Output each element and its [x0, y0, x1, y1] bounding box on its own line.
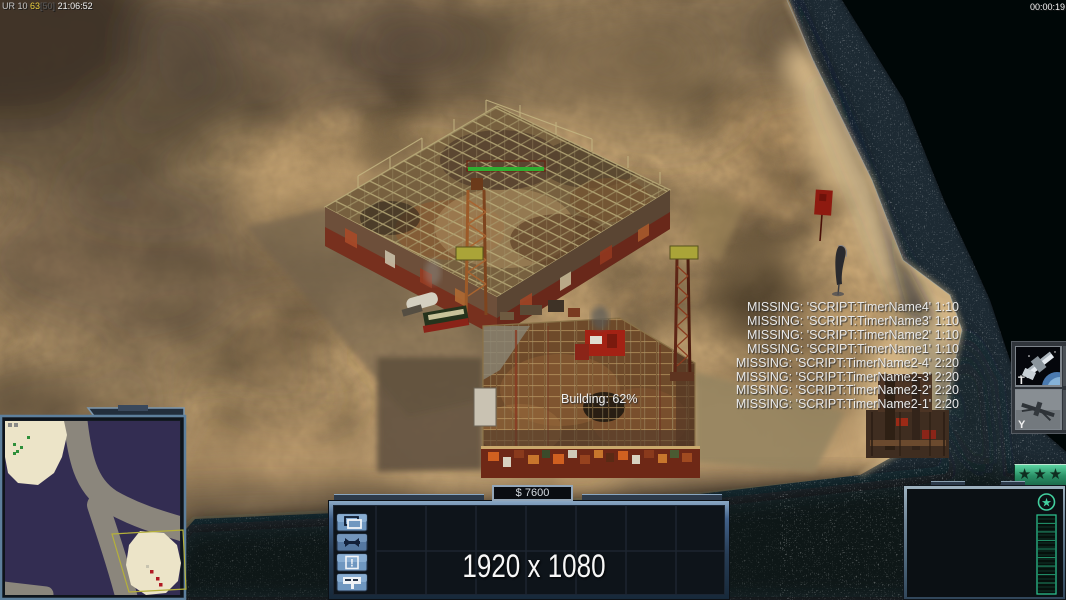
svg-text:Y: Y: [1018, 419, 1026, 430]
svg-text:T: T: [1018, 375, 1025, 387]
svg-text:★: ★: [1041, 496, 1052, 510]
